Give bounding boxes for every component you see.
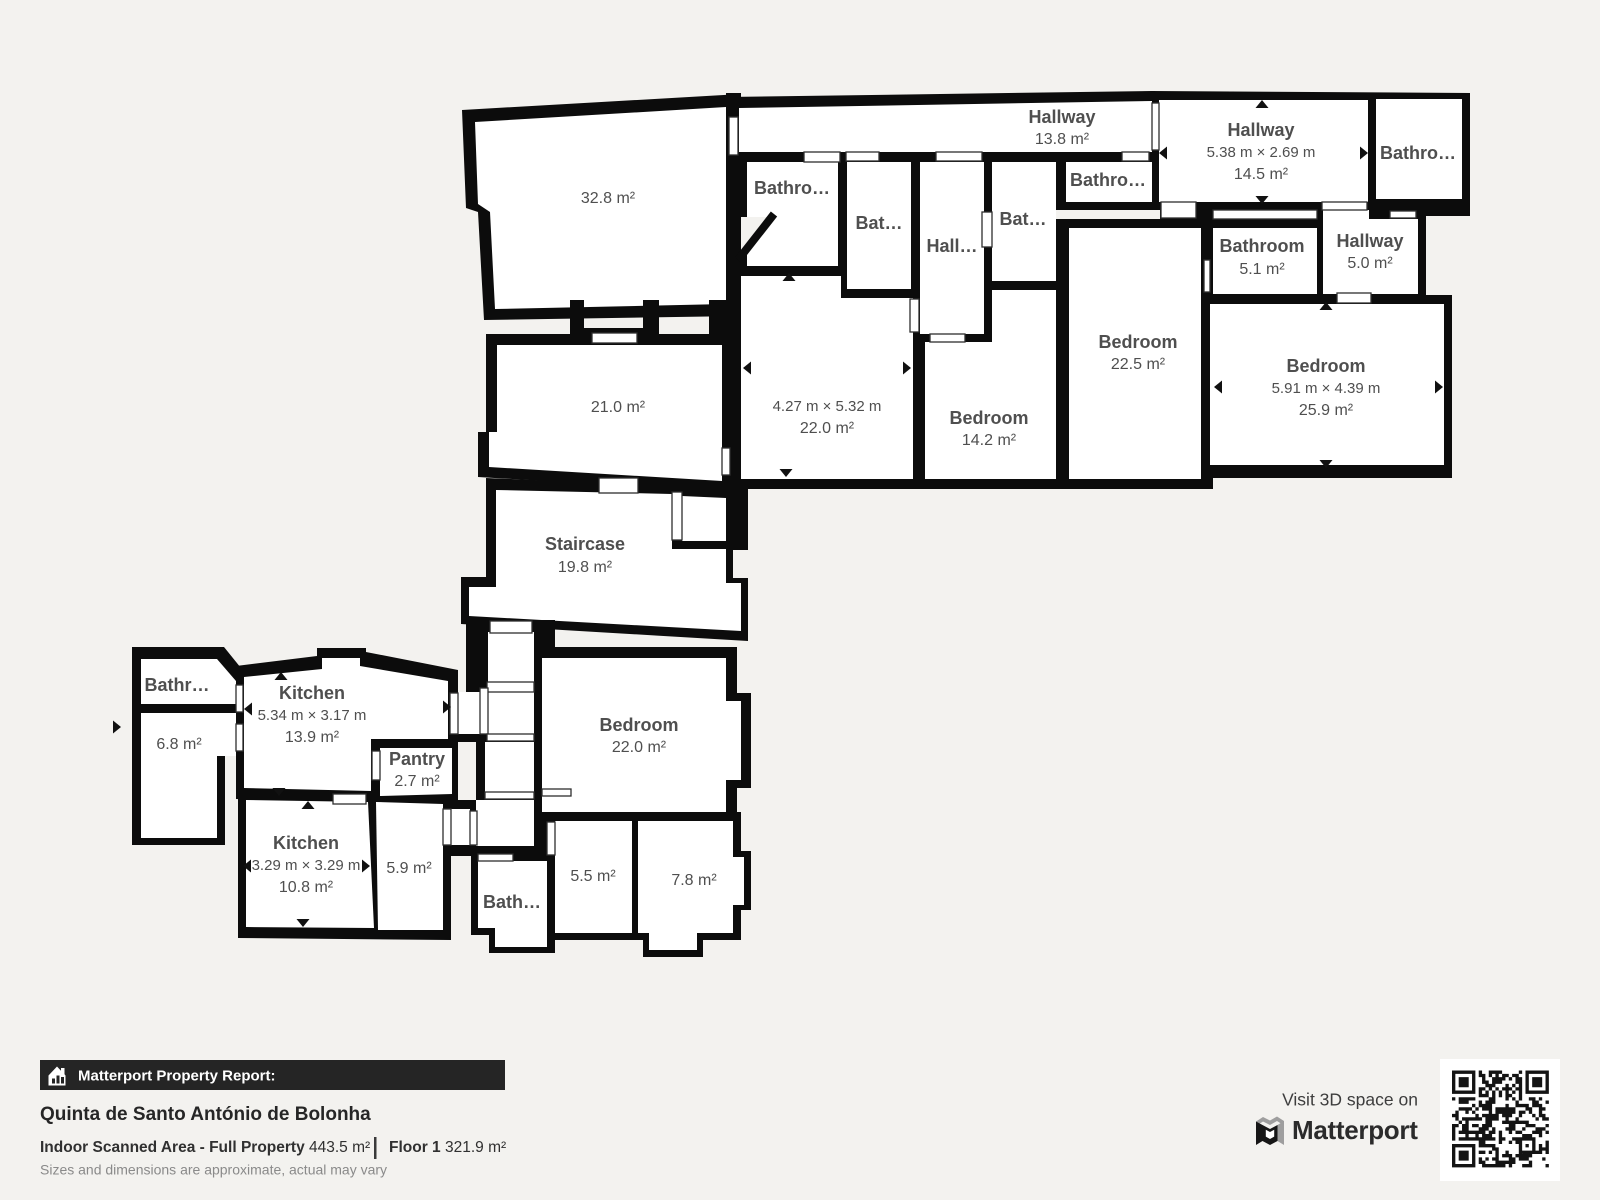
svg-text:Staircase: Staircase (545, 534, 625, 554)
svg-text:5.0 m²: 5.0 m² (1347, 255, 1393, 272)
svg-text:5.5 m²: 5.5 m² (570, 868, 616, 885)
svg-text:Kitchen: Kitchen (273, 833, 339, 853)
svg-text:22.5 m²: 22.5 m² (1111, 356, 1166, 373)
svg-text:5.34 m × 3.17 m: 5.34 m × 3.17 m (258, 707, 367, 724)
svg-text:2.7 m²: 2.7 m² (394, 773, 440, 790)
svg-text:4.27 m × 5.32 m: 4.27 m × 5.32 m (773, 398, 882, 415)
svg-text:Quinta de Santo António de Bol: Quinta de Santo António de Bolonha (40, 1104, 371, 1125)
svg-text:Bathro…: Bathro… (1070, 170, 1146, 190)
svg-text:Bedroom: Bedroom (949, 408, 1028, 428)
svg-text:14.2 m²: 14.2 m² (962, 432, 1017, 449)
svg-text:Bath…: Bath… (483, 892, 541, 912)
svg-text:21.0 m²: 21.0 m² (591, 399, 646, 416)
svg-text:19.8 m²: 19.8 m² (558, 559, 613, 576)
svg-text:Bedroom: Bedroom (1286, 356, 1365, 376)
svg-text:Hall…: Hall… (926, 236, 977, 256)
svg-text:Bathro…: Bathro… (754, 178, 830, 198)
svg-text:14.5 m²: 14.5 m² (1234, 166, 1289, 183)
svg-text:13.9 m²: 13.9 m² (285, 729, 340, 746)
svg-text:13.8 m²: 13.8 m² (1035, 131, 1090, 148)
svg-text:Bathroom: Bathroom (1220, 236, 1305, 256)
svg-text:Bat…: Bat… (999, 209, 1046, 229)
svg-text:Hallway: Hallway (1336, 231, 1403, 251)
svg-text:5.91 m × 4.39 m: 5.91 m × 4.39 m (1272, 380, 1381, 397)
svg-text:Matterport: Matterport (1292, 1115, 1418, 1145)
svg-text:Bedroom: Bedroom (1098, 332, 1177, 352)
svg-text:32.8 m²: 32.8 m² (581, 190, 636, 207)
svg-text:Matterport Property Report:: Matterport Property Report: (78, 1067, 276, 1084)
svg-text:5.38 m × 2.69 m: 5.38 m × 2.69 m (1207, 144, 1316, 161)
svg-text:3.29 m × 3.29 m: 3.29 m × 3.29 m (252, 857, 361, 874)
svg-text:Sizes and dimensions are appro: Sizes and dimensions are approximate, ac… (40, 1162, 387, 1178)
svg-text:Floor 1 321.9 m²: Floor 1 321.9 m² (389, 1139, 506, 1156)
svg-text:5.9 m²: 5.9 m² (386, 860, 432, 877)
svg-text:6.8 m²: 6.8 m² (156, 736, 202, 753)
svg-text:22.0 m²: 22.0 m² (800, 420, 855, 437)
svg-text:22.0 m²: 22.0 m² (612, 739, 667, 756)
svg-text:Visit 3D space on: Visit 3D space on (1282, 1090, 1418, 1110)
svg-text:Bat…: Bat… (855, 213, 902, 233)
svg-text:Bedroom: Bedroom (599, 715, 678, 735)
svg-text:25.9 m²: 25.9 m² (1299, 402, 1354, 419)
svg-text:Indoor Scanned Area - Full Pro: Indoor Scanned Area - Full Property 443.… (40, 1139, 370, 1156)
svg-text:Bathro…: Bathro… (1380, 143, 1456, 163)
svg-text:Hallway: Hallway (1227, 120, 1294, 140)
svg-text:Kitchen: Kitchen (279, 683, 345, 703)
svg-text:10.8 m²: 10.8 m² (279, 879, 334, 896)
svg-text:5.1 m²: 5.1 m² (1239, 261, 1285, 278)
svg-text:Bathr…: Bathr… (144, 675, 209, 695)
svg-text:Hallway: Hallway (1028, 107, 1095, 127)
svg-text:7.8 m²: 7.8 m² (671, 872, 717, 889)
svg-text:Pantry: Pantry (389, 749, 445, 769)
